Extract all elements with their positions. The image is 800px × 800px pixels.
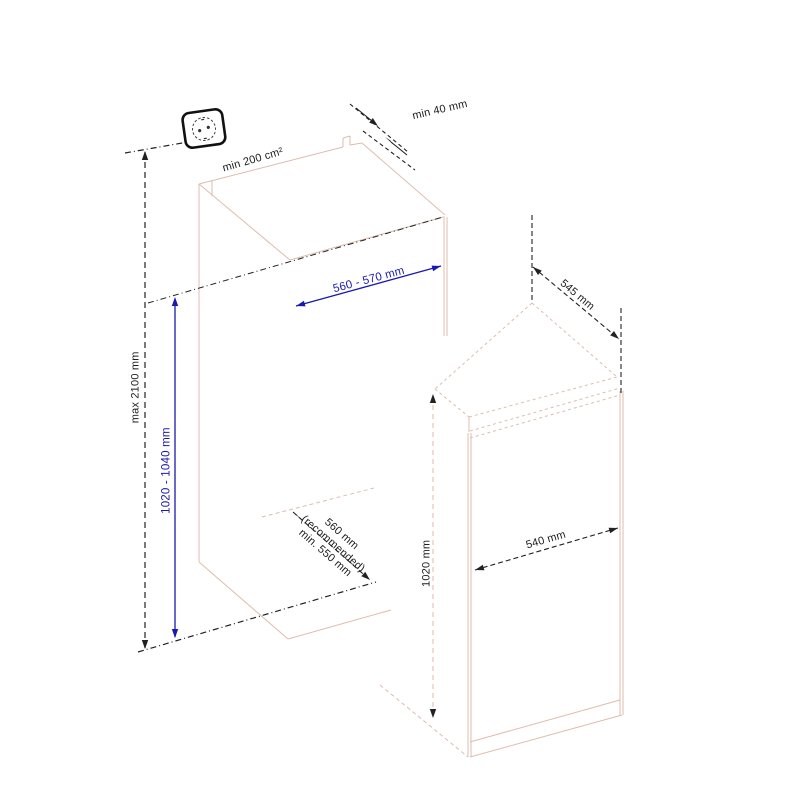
dimension-max-2100	[125, 142, 376, 652]
arrowhead	[610, 331, 619, 339]
diagram-drawing	[0, 0, 800, 800]
floor-level-extension	[138, 582, 376, 652]
label-niche-height: 1020 - 1040 mm	[160, 416, 173, 526]
appliance-top-trim	[470, 388, 620, 438]
arrowhead	[609, 528, 618, 534]
dimension-appliance-depth	[532, 215, 621, 395]
appliance-top-face	[435, 303, 617, 417]
appliance-bottom-edge	[470, 700, 622, 757]
clearance-gap-line-a	[350, 104, 408, 152]
niche-top-right-edge	[362, 143, 445, 215]
arrowhead	[430, 394, 436, 403]
label-socket-max-height: max 2100 mm	[130, 337, 143, 437]
label-appliance-height: 1020 mm	[421, 531, 434, 595]
appliance-front-left-edge	[468, 433, 471, 757]
appliance-front-right-edge	[620, 391, 623, 715]
niche-bottom-left-edge	[199, 562, 288, 639]
clearance-arrow-stem-a	[356, 108, 372, 121]
arrowhead	[430, 709, 436, 718]
arrowhead	[172, 629, 178, 638]
arrowhead	[475, 565, 484, 571]
arrowhead	[432, 266, 441, 272]
socket-plate	[182, 108, 226, 148]
floor-line	[380, 685, 468, 757]
niche-bottom-front-edge	[288, 610, 391, 639]
power-socket-icon	[182, 108, 226, 148]
arrowhead	[142, 151, 148, 160]
installation-diagram: max 2100 mm min 200 cm² min 40 mm 560 - …	[0, 0, 800, 800]
arrowhead	[142, 640, 148, 649]
socket-level-extension	[125, 142, 188, 153]
niche-top-extension	[148, 217, 443, 303]
appliance-outline	[435, 303, 623, 757]
niche-right-edge	[444, 216, 447, 336]
arrowhead	[172, 297, 178, 306]
niche-outline	[199, 136, 468, 757]
niche-top-front-edge	[290, 217, 443, 260]
arrowhead	[296, 301, 306, 307]
niche-top-left-edge	[199, 184, 290, 260]
